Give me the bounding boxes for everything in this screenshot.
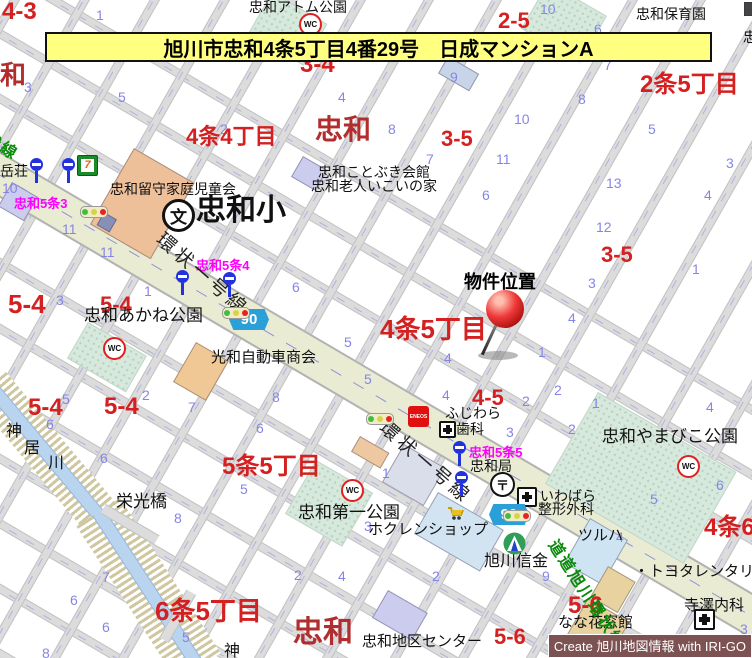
lot-number: 4: [706, 400, 714, 414]
landmark-label: ツルハ: [578, 528, 623, 543]
lot-number: 5: [62, 392, 70, 406]
landmark-label: 忠和ことぶき会館: [318, 165, 430, 179]
lot-number: 5: [648, 122, 656, 136]
lot-number: 2: [142, 388, 150, 402]
lot-number: 5: [240, 482, 248, 496]
bus-stop-label: 忠和5条3: [14, 197, 67, 210]
landmark-label: 忠和保育園: [636, 7, 706, 21]
lot-number: 3: [588, 276, 596, 290]
district-label: 5条5丁目: [222, 455, 321, 479]
lot-number: 8: [174, 511, 182, 525]
traffic-light-icon: [80, 206, 108, 218]
landmark-label: 光和自動車商会: [211, 350, 316, 365]
lot-number: 2: [568, 422, 576, 436]
landmark-label: 忠和局: [470, 459, 512, 473]
wc-icon: WC: [103, 337, 126, 360]
district-label: 4条5丁目: [380, 316, 487, 342]
bus-stop-icon: [30, 158, 43, 183]
lot-number: 11: [100, 245, 115, 259]
eneos-icon: ENEOS: [408, 406, 429, 427]
river-label: 居: [24, 441, 40, 457]
wc-icon: WC: [677, 455, 700, 478]
wc-icon: WC: [341, 479, 364, 502]
lot-number: 5: [344, 335, 352, 349]
district-label: 4条4丁目: [186, 126, 276, 148]
property-label: 物件位置: [464, 273, 536, 291]
district-label: 3-5: [441, 128, 473, 150]
lot-number: 9: [450, 70, 458, 84]
property-pin[interactable]: [486, 290, 524, 328]
area-label: 忠和: [315, 116, 371, 144]
lot-number: 1: [538, 345, 546, 359]
lot-number: 8: [388, 122, 396, 136]
landmark-label: 忠和アトム公園: [249, 0, 347, 14]
cart-icon: [447, 506, 465, 526]
lot-number: 10: [514, 112, 530, 126]
lot-number: 5: [364, 372, 372, 386]
lot-number: 9: [542, 569, 550, 583]
lot-number: 4: [442, 388, 450, 402]
lot-number: 3: [726, 156, 734, 170]
lot-number: 5: [650, 492, 658, 506]
traffic-light-icon: [366, 413, 394, 425]
bus-stop-icon: [176, 270, 189, 295]
district-label: 和: [0, 62, 26, 88]
bus-stop-icon: [62, 158, 75, 183]
lot-number: 7: [188, 400, 196, 414]
district-label: 5-4: [104, 395, 139, 419]
lot-number: 11: [62, 222, 77, 236]
lot-number: 1: [144, 284, 152, 298]
lot-number: 8: [42, 646, 50, 658]
landmark-label: 忠和やまびこ公園: [602, 428, 738, 445]
lot-number: 13: [606, 176, 622, 190]
landmark-label: 栄光橋: [116, 493, 167, 510]
district-label: 5-6: [494, 626, 526, 648]
lot-number: 6: [256, 421, 264, 435]
district-label: 5-4: [8, 291, 46, 317]
district-label: 5-4: [28, 396, 63, 420]
landmark-label: 忠和老人いこいの家: [311, 179, 437, 193]
building: [744, 2, 752, 16]
lot-number: 5: [118, 90, 126, 104]
bus-stop-icon: [455, 471, 468, 496]
landmark-label: 忠和地区センター: [362, 634, 482, 649]
landmark-label: 整形外科: [538, 502, 594, 516]
address-title-banner: 旭川市忠和4条5丁目4番29号 日成マンションA: [45, 32, 712, 62]
lot-number: 2: [554, 383, 562, 397]
lot-number: 2: [522, 394, 530, 408]
bus-stop-label: 忠和5条5: [469, 446, 522, 459]
lot-number: 3: [56, 293, 64, 307]
lot-number: 4: [568, 311, 576, 325]
landmark-label: 忠和第一公園: [298, 504, 400, 521]
lot-number: 4: [704, 188, 712, 202]
district-label: 2条5丁目: [640, 73, 739, 97]
traffic-light-icon: [222, 307, 250, 319]
river-label: 川: [48, 456, 64, 472]
district-label: 3-5: [601, 244, 633, 266]
bus-stop-icon: [453, 441, 466, 466]
bank-mark-icon: [503, 532, 526, 560]
landmark-label: 歯科: [456, 422, 484, 436]
area-label: 忠和: [293, 618, 353, 648]
school-mark-icon: 文: [162, 199, 195, 232]
district-label: 2-5: [498, 10, 530, 32]
district-label: 4条6丁目: [704, 516, 752, 540]
post-mark-icon: 〒: [490, 472, 515, 497]
lot-number: 5: [182, 630, 190, 644]
hospital-cross-icon: [439, 421, 456, 438]
river-label: 神: [224, 644, 240, 658]
lot-number: 11: [496, 152, 511, 166]
landmark-label: ホクレンショップ: [368, 522, 488, 537]
lot-number: 2: [432, 569, 440, 583]
lot-number: 1: [692, 262, 700, 276]
district-label: 6条5丁目: [155, 598, 262, 624]
bus-stop-icon: [223, 272, 236, 297]
lot-number: 1: [96, 8, 104, 22]
landmark-label: 忠和小: [196, 196, 286, 226]
map-canvas: 旭川市忠和4条5丁目4番29号 日成マンションA Create 旭川地図情報 w…: [0, 0, 752, 658]
lot-number: 6: [102, 620, 110, 634]
landmark-label: ・トヨタレンタリース: [634, 564, 752, 579]
lot-number: 1: [382, 466, 390, 480]
lot-number: 6: [292, 280, 300, 294]
lot-number: 8: [272, 390, 280, 404]
lot-number: 6: [482, 188, 490, 202]
lot-number: 4: [338, 90, 346, 104]
lot-number: 12: [596, 220, 612, 234]
lot-number: 6: [70, 593, 78, 607]
landmark-label: ふじわら: [445, 406, 501, 420]
district-label: 4-3: [2, 0, 37, 24]
lot-number: 4: [338, 569, 346, 583]
seven-eleven-icon: 7: [77, 155, 98, 176]
lot-number: 1: [592, 396, 600, 410]
river-label: 神: [6, 424, 22, 440]
landmark-label: 岳荘: [0, 164, 28, 178]
lot-number: 4: [444, 351, 452, 365]
traffic-light-icon: [503, 510, 531, 522]
map-credit: Create 旭川地図情報 with IRI-GO: [548, 634, 752, 658]
landmark-label: 忠和あかね公園: [84, 307, 203, 324]
landmark-label: 忠: [743, 30, 752, 44]
lot-number: 6: [716, 478, 724, 492]
lot-number: 10: [540, 2, 556, 16]
lot-number: 10: [2, 181, 18, 195]
lot-number: 8: [578, 92, 586, 106]
lot-number: 2: [294, 568, 302, 582]
lot-number: 6: [100, 451, 108, 465]
lot-number: 7: [102, 570, 110, 584]
lot-number: 3: [506, 425, 514, 439]
hospital-cross-icon: [694, 609, 715, 630]
